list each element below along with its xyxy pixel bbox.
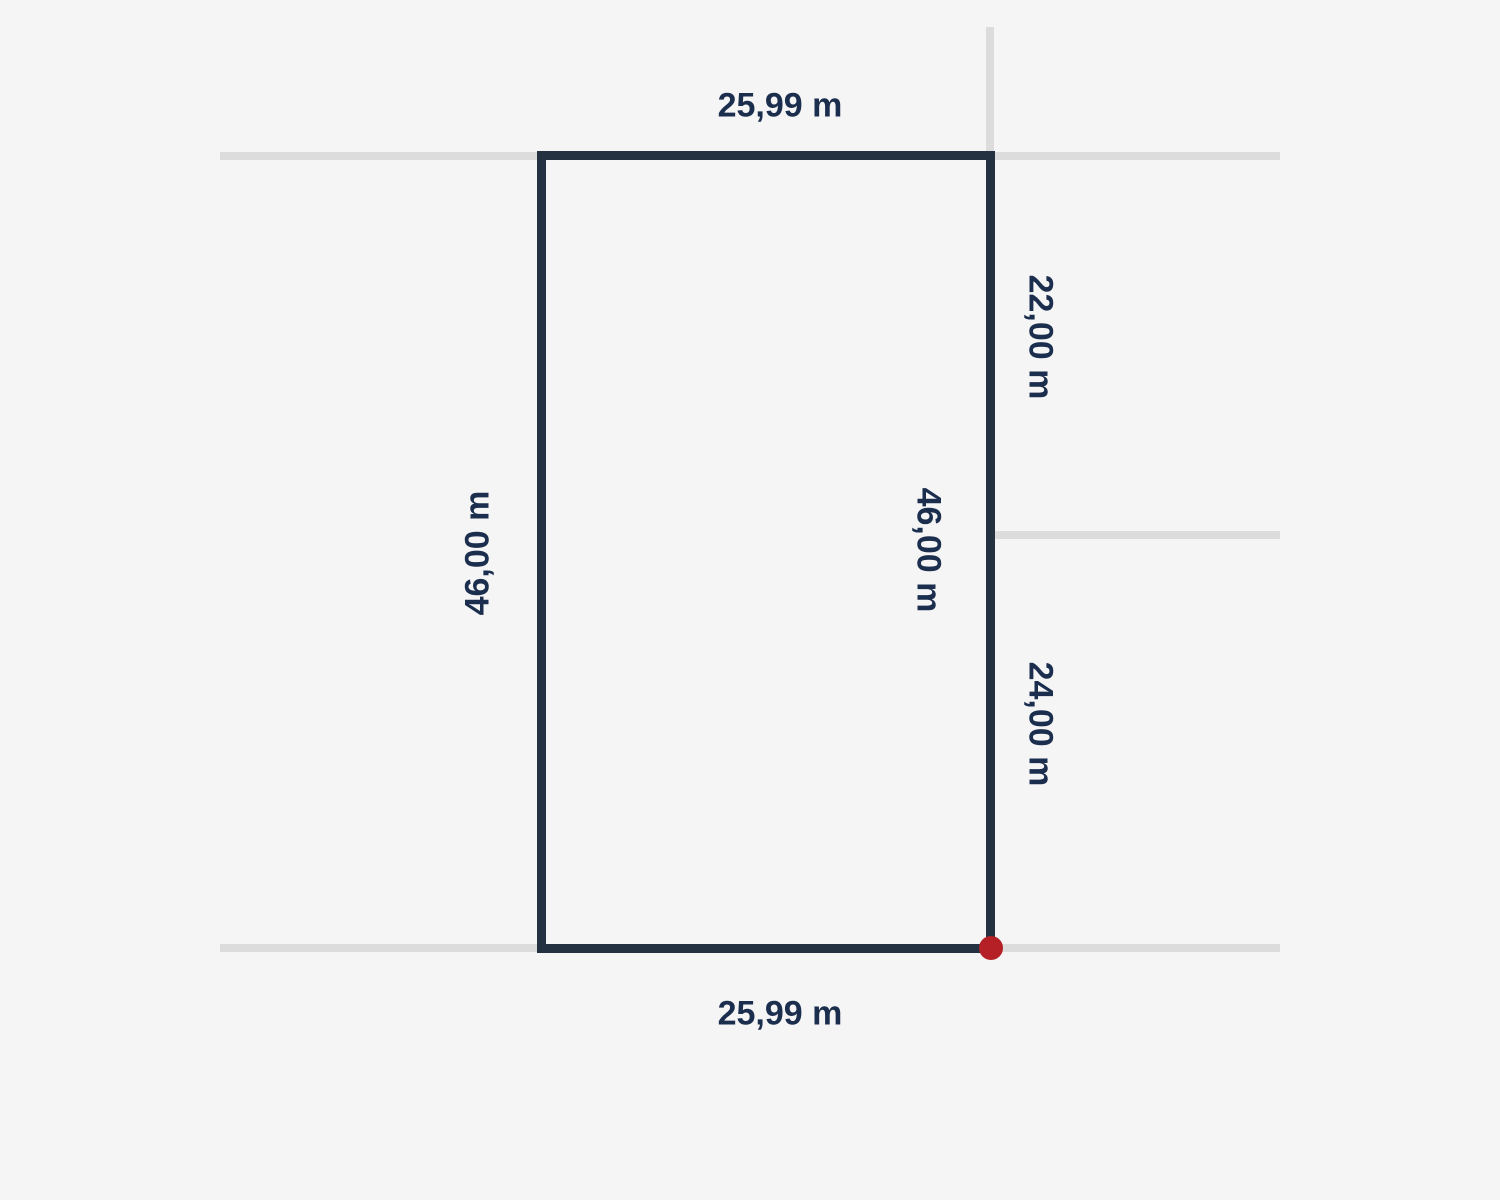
dimension-label-bottom: 25,99 m: [718, 995, 843, 1034]
plot-diagram: 25,99 m 46,00 m 46,00 m 22,00 m 24,00 m …: [0, 0, 1500, 1200]
dimension-label-right-lower-segment: 24,00 m: [1021, 662, 1060, 787]
dimension-label-right-inner: 46,00 m: [909, 488, 948, 613]
corner-vertex-marker[interactable]: [979, 936, 1003, 960]
neighbor-line-vertical-top: [986, 27, 994, 156]
dimension-label-right-upper-segment: 22,00 m: [1021, 275, 1060, 400]
neighbor-line-middle-right: [994, 531, 1280, 539]
dimension-label-top: 25,99 m: [718, 87, 843, 126]
dimension-label-left: 46,00 m: [459, 491, 498, 616]
